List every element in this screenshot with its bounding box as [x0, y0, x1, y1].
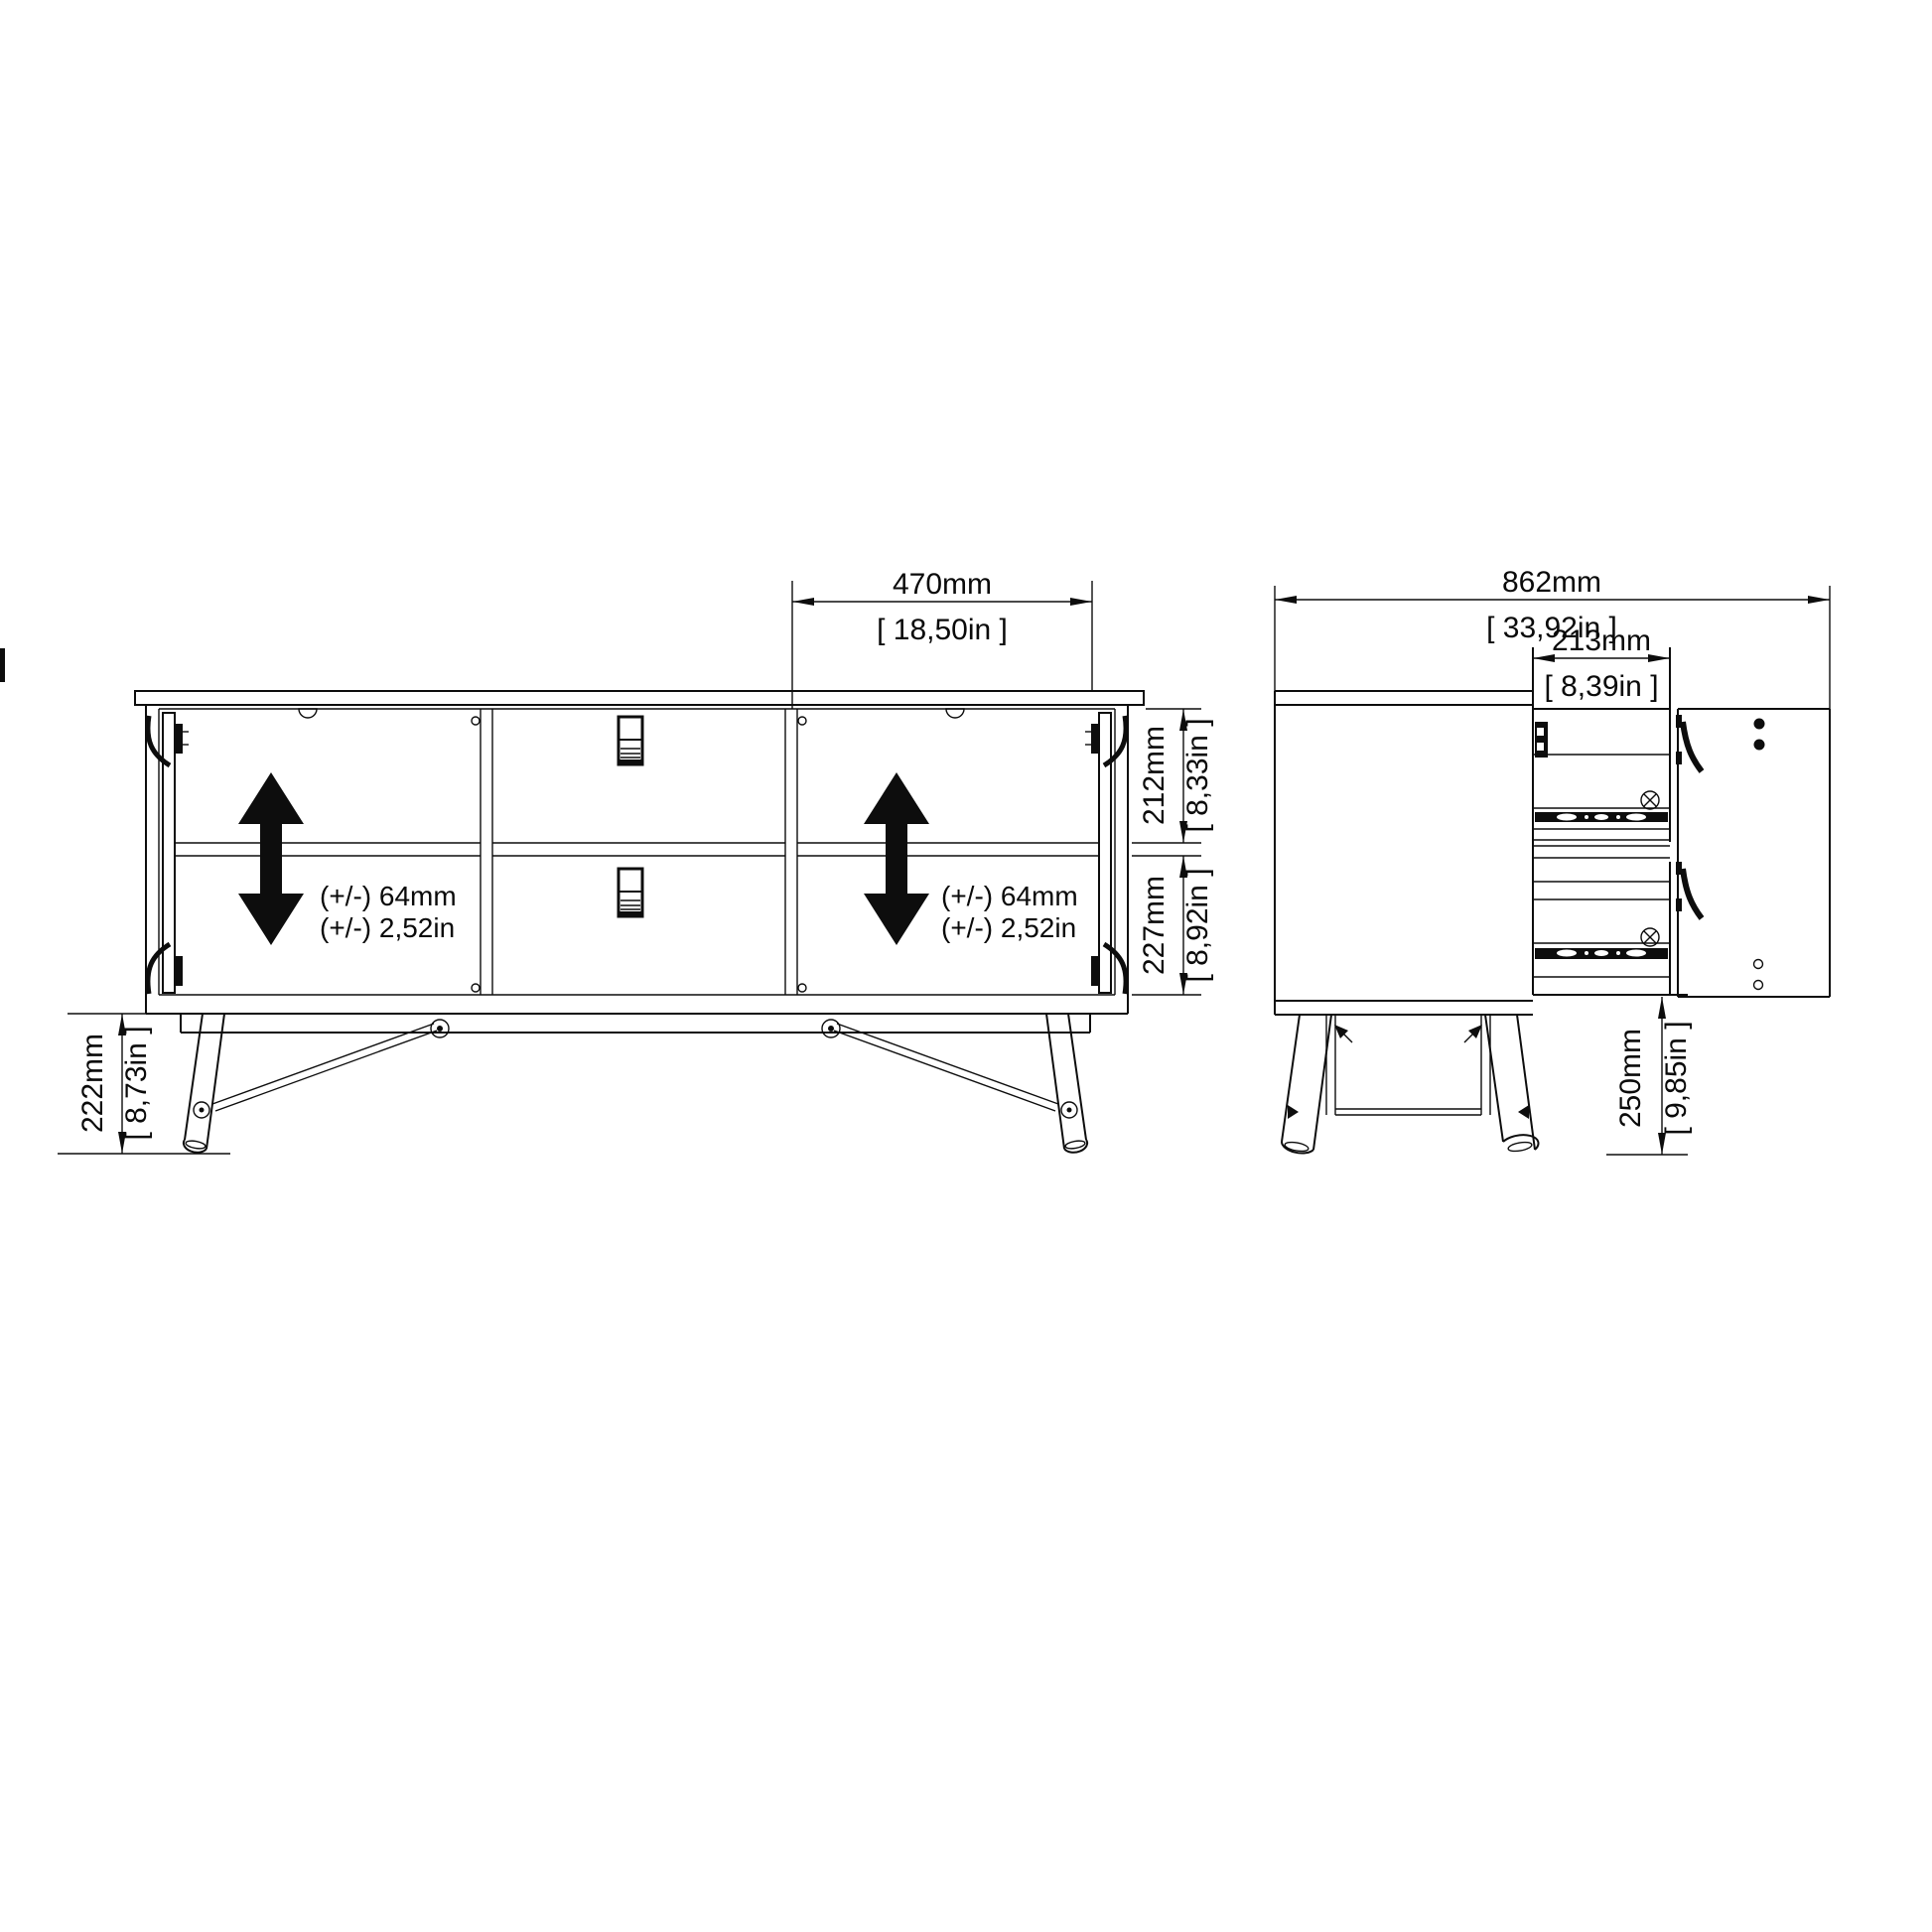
shelf-adjust-arrow-icon: [864, 772, 929, 945]
screw-pointer-icon: [1288, 1105, 1299, 1119]
dim-label: [ 8,39in ]: [1544, 670, 1658, 703]
shelf-adjust-label: (+/-) 64mm: [941, 881, 1078, 911]
open-door-panel: [1676, 709, 1830, 997]
shelf-adjust-label: (+/-) 2,52in: [320, 912, 455, 943]
shelf-adjust-arrow-icon: [238, 772, 304, 945]
side-legs: [1282, 1015, 1538, 1154]
dim-label: [ 8,73in ]: [120, 1026, 153, 1140]
shelf-adjust-label: (+/-) 64mm: [320, 881, 457, 911]
front-right-leg: [1046, 1014, 1087, 1153]
drawer-handle-icon: [619, 869, 642, 916]
side-body: [1275, 691, 1533, 1015]
drawer-handle-icon: [619, 717, 642, 764]
dim-label: [ 8,33in ]: [1181, 718, 1214, 832]
hinge-hook-icon: [1676, 862, 1702, 918]
screw-hole-icon: [1754, 981, 1763, 990]
door-damper-icon: [946, 709, 964, 718]
left-door-leaf: [163, 713, 175, 993]
right-door-leaf: [1099, 713, 1111, 993]
shelves: [175, 843, 1099, 856]
technical-drawing-page: { "drawing": { "front_view": { "door_wid…: [0, 0, 1932, 1932]
slide-bracket-icon: [1535, 722, 1548, 758]
dim-drawer-depth: 213mm [ 8,39in ]: [1533, 624, 1670, 703]
dim-floor-clearance: 250mm [ 9,85in ]: [1606, 997, 1693, 1155]
dim-label: 227mm: [1138, 876, 1171, 975]
dim-label: 470mm: [893, 568, 992, 601]
sideboard-dimension-diagram: (+/-) 64mm (+/-) 2,52in (+/-) 64mm (+/-)…: [0, 0, 1932, 1932]
screw-hole-icon: [1754, 740, 1765, 751]
dim-label: 213mm: [1552, 624, 1651, 657]
side-view: 862mm [ 33,92in ] 213mm [ 8,39in ] 250mm…: [1275, 566, 1830, 1155]
dim-door-width: 470mm [ 18,50in ]: [792, 568, 1092, 709]
dim-label: 250mm: [1614, 1029, 1647, 1128]
top-panel: [135, 691, 1144, 705]
dim-label: 862mm: [1502, 566, 1601, 599]
hinge-hook-icon: [1676, 715, 1702, 771]
screw-hole-icon: [1754, 960, 1763, 969]
bottom-apron: [181, 1014, 1090, 1033]
scan-artifact: [0, 648, 5, 682]
front-left-leg: [184, 1014, 224, 1153]
screw-pointer-icon: [1518, 1105, 1529, 1119]
door-damper-icon: [299, 709, 317, 718]
dim-label: [ 8,92in ]: [1181, 868, 1214, 982]
dim-compartments: 212mm [ 8,33in ] 227mm [ 8,92in ]: [1132, 709, 1214, 995]
dim-label: 212mm: [1138, 726, 1171, 825]
dim-label: [ 9,85in ]: [1660, 1021, 1693, 1135]
assembly-arrow-icon: [1334, 1025, 1352, 1042]
shelf-adjust-label: (+/-) 2,52in: [941, 912, 1076, 943]
dim-label: 222mm: [76, 1034, 109, 1133]
dim-label: [ 18,50in ]: [877, 614, 1008, 646]
screw-hole-icon: [1754, 719, 1765, 730]
front-view: (+/-) 64mm (+/-) 2,52in (+/-) 64mm (+/-)…: [58, 568, 1214, 1154]
dim-leg-height: 222mm [ 8,73in ]: [58, 1014, 230, 1154]
assembly-arrow-icon: [1464, 1025, 1482, 1042]
screw-icon: [1641, 791, 1659, 809]
